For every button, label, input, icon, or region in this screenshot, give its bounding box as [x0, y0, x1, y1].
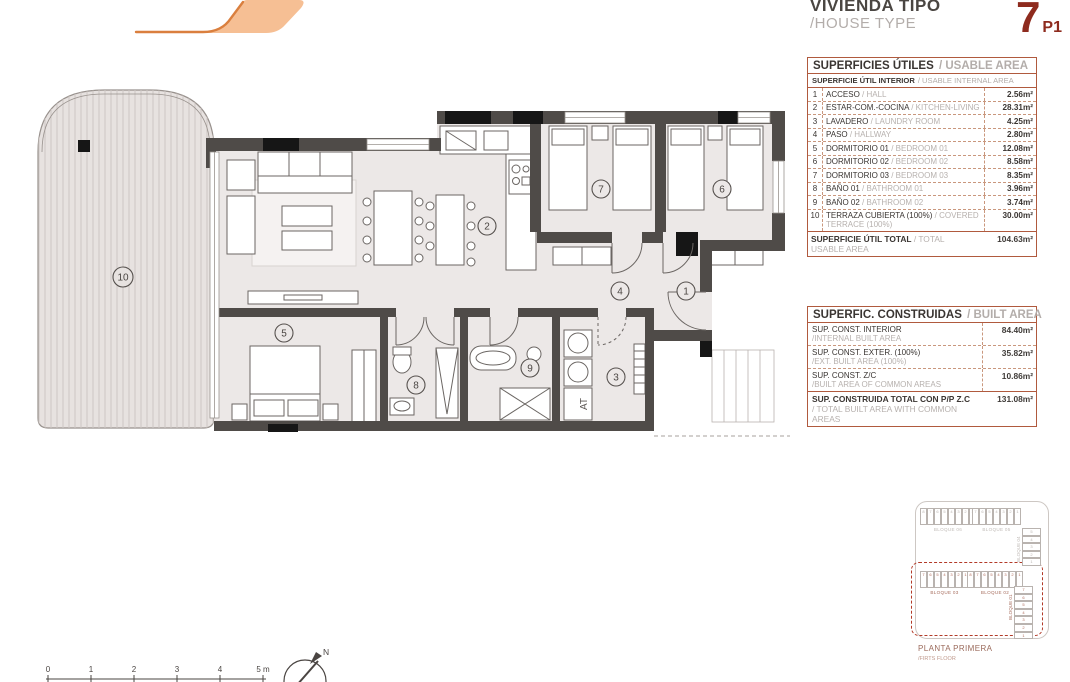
row-name: TERRAZA CUBIERTA (100%) / COVERED TERRAC…	[823, 210, 984, 231]
row-area-value: 8.58m²	[984, 156, 1036, 169]
room-marker-4: 4	[611, 282, 629, 300]
table-row: 6 DORMITORIO 02 / BEDROOM 02 8.58m²	[808, 155, 1036, 169]
keyplan-unit-cell: 7	[974, 571, 981, 588]
unit-number: 7 P1	[1016, 0, 1062, 38]
keyplan-bloque-06: 87654321 BLOQUE 06	[920, 508, 976, 532]
keyplan-unit-cell: 5	[1022, 528, 1041, 536]
usable-table-rows: 1 ACCESO / HALL 2.56m² 2 ESTAR-COM.-COCI…	[808, 88, 1036, 231]
row-name: ESTAR-COM.-COCINA / KITCHEN-LIVING	[823, 102, 984, 115]
keyplan-unit-cell: 3	[948, 571, 955, 588]
row-name: PASO / HALLWAY	[823, 129, 984, 142]
row-number: 3	[808, 115, 823, 128]
built-area-table: SUPERFIC. CONSTRUIDAS / BUILT AREA SUP. …	[807, 306, 1037, 427]
keyplan-unit-cell-highlighted: 6	[1014, 594, 1033, 602]
row-area-value: 2.56m²	[984, 88, 1036, 101]
keyplan-unit-cell: 4	[941, 571, 948, 588]
room-marker-10: 10	[113, 267, 133, 287]
floor-plan-drawing: AT	[0, 0, 800, 682]
row-name: DORMITORIO 01 / BEDROOM 01	[823, 142, 984, 155]
room-marker-8: 8	[407, 376, 425, 394]
built-total-row: SUP. CONSTRUIDA TOTAL CON P/P Z.C/ TOTAL…	[808, 391, 1036, 426]
keyplan-unit-cell: 2	[1022, 551, 1041, 559]
table-row: 1 ACCESO / HALL 2.56m²	[808, 88, 1036, 101]
row-number: 4	[808, 129, 823, 142]
row-number: 7	[808, 169, 823, 182]
title-en: /HOUSE TYPE	[810, 15, 941, 32]
house-type-title: VIVIENDA TIPO /HOUSE TYPE	[810, 0, 941, 38]
keyplan-unit-cell-highlighted: 4	[1014, 609, 1033, 617]
keyplan-bloque-05: 7654321 BLOQUE 05	[972, 508, 1021, 532]
usable-total-row: SUPERFICIE ÚTIL TOTAL / TOTAL USABLE ARE…	[808, 231, 1036, 256]
keyplan-unit-cell: 2	[1007, 508, 1014, 525]
row-name: LAVADERO / LAUNDRY ROOM	[823, 115, 984, 128]
svg-text:0: 0	[46, 665, 51, 674]
stair-landing	[712, 350, 774, 422]
keyplan-unit-cell: 6	[934, 508, 941, 525]
keyplan-unit-cell: 3	[1022, 543, 1041, 551]
column	[78, 140, 90, 152]
room-marker-2: 2	[478, 217, 496, 235]
keyplan-unit-cell: 2	[962, 508, 969, 525]
keyplan-unit-cell: 5	[988, 571, 995, 588]
table-row: 8 BAÑO 01 / BATHROOM 01 3.96m²	[808, 182, 1036, 196]
row-area-value: 84.40m²	[982, 323, 1036, 345]
row-area-value: 3.96m²	[984, 183, 1036, 196]
row-number: 10	[808, 210, 823, 231]
keyplan-unit-cell: 7	[972, 508, 979, 525]
keyplan-unit-cell: 3	[955, 508, 962, 525]
usable-area-table: SUPERFICIES ÚTILES / USABLE AREA SUPERFI…	[807, 57, 1037, 257]
svg-text:6: 6	[719, 185, 725, 196]
row-name: BAÑO 01 / BATHROOM 01	[823, 183, 984, 196]
unit-number-value: 7	[1016, 0, 1040, 38]
row-number: 1	[808, 88, 823, 101]
table-row: SUP. CONST. Z/C/BUILT AREA OF COMMON ARE…	[808, 368, 1036, 391]
plan-sheet: AT	[0, 0, 1070, 682]
svg-text:1: 1	[683, 287, 689, 298]
row-number: 9	[808, 196, 823, 209]
keyplan-unit-cell: 7	[927, 508, 934, 525]
room-marker-7: 7	[592, 180, 610, 198]
built-title-es: SUPERFIC. CONSTRUIDAS	[813, 309, 962, 321]
keyplan-unit-cell: 8	[920, 508, 927, 525]
built-title-en: / BUILT AREA	[967, 309, 1042, 321]
table-row: 7 DORMITORIO 03 / BEDROOM 03 8.35m²	[808, 168, 1036, 182]
water-heater-label: AT	[579, 398, 590, 410]
row-area-value: 8.35m²	[984, 169, 1036, 182]
row-name: ACCESO / HALL	[823, 88, 984, 101]
room-marker-9: 9	[521, 359, 539, 377]
row-name: SUP. CONST. INTERIOR/INTERNAL BUILT AREA	[808, 323, 982, 345]
keyplan-unit-cell: 4	[993, 508, 1000, 525]
row-number: 2	[808, 102, 823, 115]
row-number: 5	[808, 142, 823, 155]
table-row: 3 LAVADERO / LAUNDRY ROOM 4.25m²	[808, 114, 1036, 128]
row-area-value: 35.82m²	[982, 346, 1036, 368]
keyplan-unit-cell: 5	[934, 571, 941, 588]
built-table-rows: SUP. CONST. INTERIOR/INTERNAL BUILT AREA…	[808, 323, 1036, 391]
usable-title-en: / USABLE AREA	[939, 60, 1028, 72]
row-area-value: 4.25m²	[984, 115, 1036, 128]
svg-text:7: 7	[598, 185, 604, 196]
bedroom1-furniture	[232, 346, 376, 422]
room-marker-6: 6	[713, 180, 731, 198]
svg-text:4: 4	[617, 287, 623, 298]
keyplan-unit-cell: 5	[941, 508, 948, 525]
row-number: 8	[808, 183, 823, 196]
keyplan-unit-cell: 7	[920, 571, 927, 588]
keyplan: 87654321 BLOQUE 06 7654321 BLOQUE 05 BLO…	[905, 498, 1067, 668]
keyplan-bloque-03: 7654321 BLOQUE 03	[920, 571, 969, 595]
keyplan-unit-cell: 8	[967, 571, 974, 588]
keyplan-unit-cell: 5	[986, 508, 993, 525]
row-name: SUP. CONST. EXTER. (100%)/EXT. BUILT ARE…	[808, 346, 982, 368]
row-number: 6	[808, 156, 823, 169]
keyplan-unit-cell: 6	[981, 571, 988, 588]
keyplan-unit-cell-highlighted: 1	[1014, 632, 1033, 640]
covered-terrace	[38, 90, 214, 428]
row-area-value: 30.00m²	[984, 210, 1036, 231]
svg-text:9: 9	[527, 364, 533, 375]
svg-text:3: 3	[613, 373, 619, 384]
svg-text:N: N	[323, 647, 329, 657]
keyplan-unit-cell: 3	[1000, 508, 1007, 525]
room-marker-5: 5	[275, 324, 293, 342]
keyplan-unit-cell-highlighted: 2	[1014, 624, 1033, 632]
north-compass: N	[284, 647, 329, 682]
row-area-value: 3.74m²	[984, 196, 1036, 209]
svg-text:2: 2	[132, 665, 137, 674]
table-row: 5 DORMITORIO 01 / BEDROOM 01 12.08m²	[808, 141, 1036, 155]
svg-text:1: 1	[89, 665, 94, 674]
keyplan-unit-cell: 6	[979, 508, 986, 525]
table-row: SUP. CONST. EXTER. (100%)/EXT. BUILT ARE…	[808, 345, 1036, 368]
row-name: DORMITORIO 03 / BEDROOM 03	[823, 169, 984, 182]
keyplan-unit-cell: 4	[995, 571, 1002, 588]
room-marker-3: 3	[607, 368, 625, 386]
usable-title-es: SUPERFICIES ÚTILES	[813, 60, 934, 72]
keyplan-unit-cell-highlighted: 7	[1014, 586, 1033, 594]
keyplan-unit-cell: 4	[1022, 536, 1041, 544]
keyplan-bloque-04: BLOQUE 04 54321	[1016, 528, 1041, 570]
svg-text:10: 10	[117, 273, 129, 284]
keyplan-unit-cell: 6	[927, 571, 934, 588]
title-es: VIVIENDA TIPO	[810, 0, 941, 15]
keyplan-caption: PLANTA PRIMERA /FIRTS FLOOR	[918, 638, 992, 662]
header: VIVIENDA TIPO /HOUSE TYPE 7 P1	[810, 0, 1062, 38]
usable-table-title: SUPERFICIES ÚTILES / USABLE AREA	[807, 57, 1037, 74]
table-row: 9 BAÑO 02 / BATHROOM 02 3.74m²	[808, 195, 1036, 209]
row-area-value: 28.31m²	[984, 102, 1036, 115]
usable-table-subheader: SUPERFICIE ÚTIL INTERIOR / USABLE INTERN…	[808, 74, 1036, 88]
unit-floor-value: P1	[1042, 18, 1062, 38]
svg-text:5 m: 5 m	[256, 665, 270, 674]
svg-text:5: 5	[281, 329, 287, 340]
svg-text:2: 2	[484, 222, 490, 233]
keyplan-unit-cell-highlighted: 3	[1014, 616, 1033, 624]
svg-text:4: 4	[218, 665, 223, 674]
svg-text:3: 3	[175, 665, 180, 674]
built-table-title: SUPERFIC. CONSTRUIDAS / BUILT AREA	[807, 306, 1037, 323]
usable-total-value: 104.63m²	[981, 234, 1036, 254]
svg-text:8: 8	[413, 381, 419, 392]
built-total-value: 131.08m²	[983, 392, 1036, 426]
keyplan-unit-cell: 4	[948, 508, 955, 525]
keyplan-unit-cell-highlighted: 5	[1014, 601, 1033, 609]
room-marker-1: 1	[677, 282, 695, 300]
keyplan-unit-cell: 1	[1022, 558, 1041, 566]
row-area-value: 10.86m²	[982, 369, 1036, 391]
row-area-value: 12.08m²	[984, 142, 1036, 155]
row-area-value: 2.80m²	[984, 129, 1036, 142]
keyplan-bloque-01: BLOQUE 01 7654321	[1008, 586, 1033, 639]
tv-console	[248, 291, 358, 304]
row-name: BAÑO 02 / BATHROOM 02	[823, 196, 984, 209]
table-row: SUP. CONST. INTERIOR/INTERNAL BUILT AREA…	[808, 323, 1036, 345]
table-row: 10 TERRAZA CUBIERTA (100%) / COVERED TER…	[808, 209, 1036, 231]
brand-logo	[136, 0, 304, 33]
row-name: SUP. CONST. Z/C/BUILT AREA OF COMMON ARE…	[808, 369, 982, 391]
table-row: 2 ESTAR-COM.-COCINA / KITCHEN-LIVING 28.…	[808, 101, 1036, 115]
keyplan-unit-cell: 1	[1014, 508, 1021, 525]
scale-bar	[46, 675, 266, 682]
keyplan-unit-cell: 2	[955, 571, 962, 588]
row-name: DORMITORIO 02 / BEDROOM 02	[823, 156, 984, 169]
scale-labels: 0 1 2 3 4 5 m	[46, 665, 270, 674]
table-row: 4 PASO / HALLWAY 2.80m²	[808, 128, 1036, 142]
